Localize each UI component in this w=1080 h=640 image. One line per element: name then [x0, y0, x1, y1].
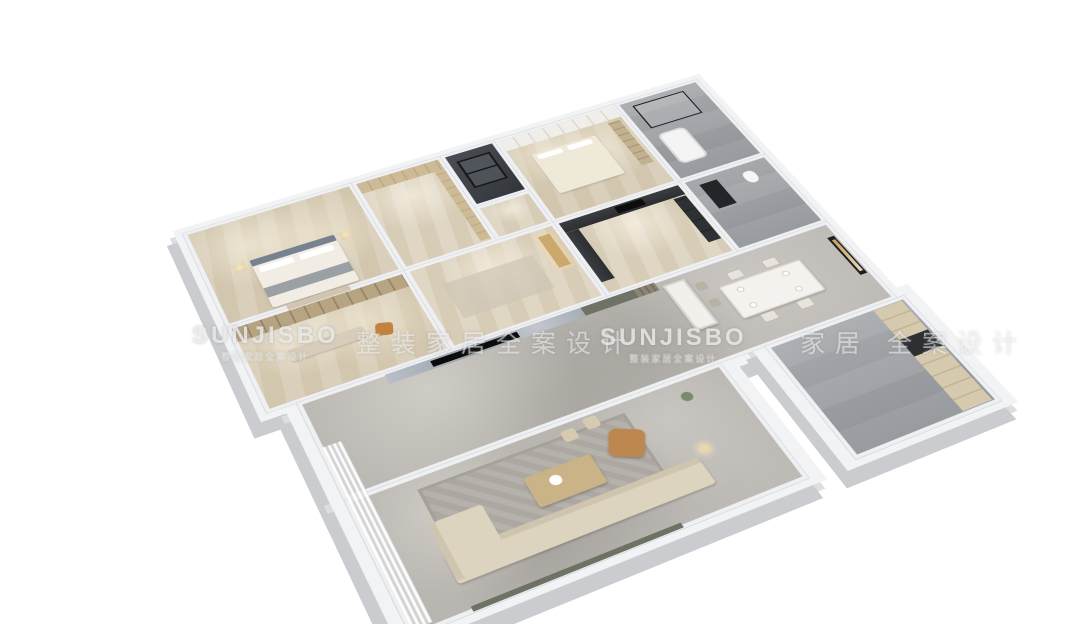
armchair — [608, 429, 645, 458]
apartment-plan — [173, 74, 1007, 624]
floorplan-render: SUNJISBO 整装家居全案设计 整装家居全案设计 SUNJISBO 整装家居… — [40, 16, 1080, 624]
